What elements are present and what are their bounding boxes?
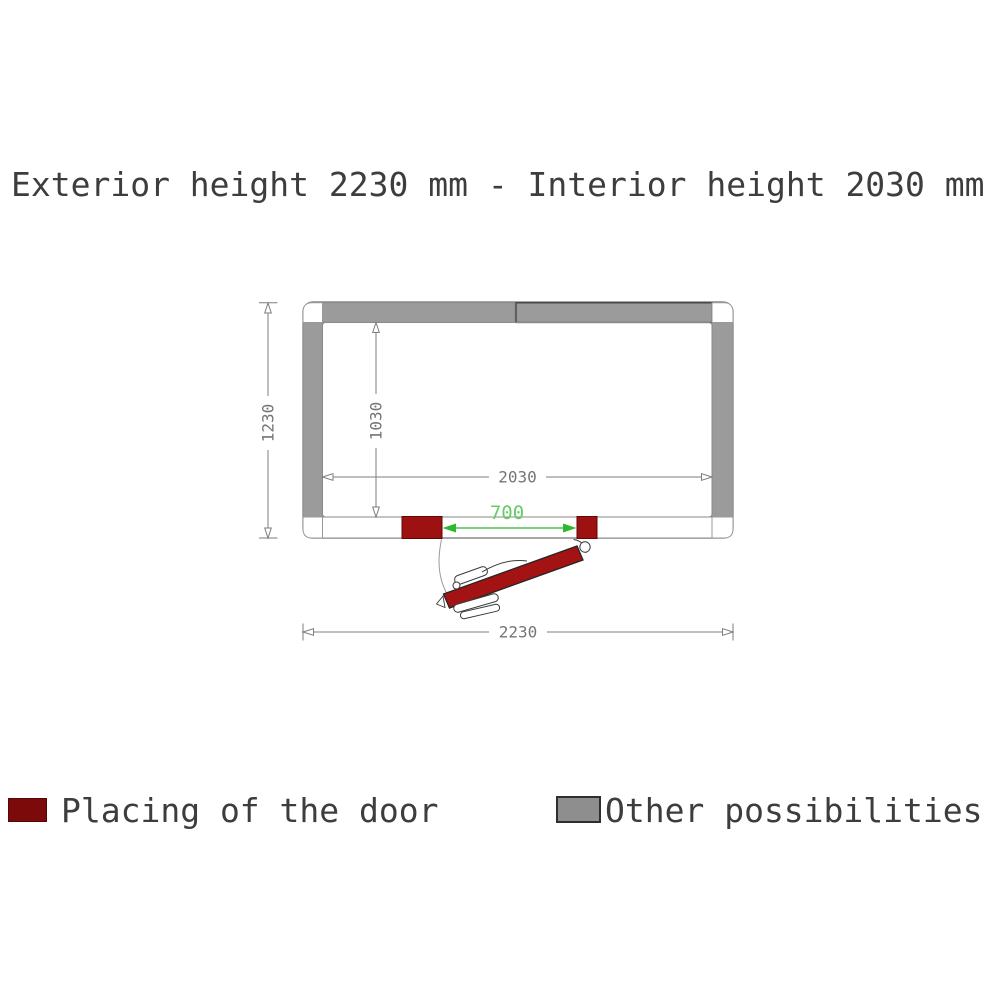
corner-bottom-right — [712, 517, 733, 538]
dim-label-exterior-depth: 1230 — [259, 404, 278, 443]
corner-top-left — [303, 303, 323, 323]
legend-door-label: Placing of the door — [61, 793, 439, 829]
dim-label-interior-depth: 1030 — [367, 402, 386, 441]
dim-arrow-left-icon — [303, 629, 314, 636]
legend-other-label: Other possibilities — [605, 793, 983, 829]
door-jamb-right — [577, 517, 597, 539]
dim-arrow-right-icon — [723, 629, 734, 636]
corner-bottom-left — [303, 517, 323, 538]
wall-left-panel — [303, 323, 323, 518]
dim-arrow-down-icon — [265, 528, 272, 538]
legend-other-swatch — [556, 796, 601, 823]
wall-top-left-panel — [323, 303, 516, 323]
wall-top-right-panel — [516, 303, 712, 323]
floor-plan-diagram: 1230 1030 2030 2230 — [0, 0, 1000, 1000]
dim-label-door-opening: 700 — [490, 502, 524, 524]
door-hinge-pivot — [580, 542, 590, 552]
cold-room-plan-page: Exterior height 2230 mm - Interior heigh… — [0, 0, 1000, 1000]
door-handle-knob — [453, 582, 460, 589]
wall-right-panel — [712, 323, 733, 518]
door-end-wedge — [437, 596, 446, 608]
dim-label-exterior-width: 2230 — [499, 623, 538, 642]
dim-arrow-up-icon — [265, 303, 272, 313]
corner-top-right — [712, 303, 733, 323]
door-jamb-left — [402, 517, 442, 539]
legend-door-swatch — [8, 798, 47, 822]
dim-label-interior-width: 2030 — [498, 468, 537, 487]
